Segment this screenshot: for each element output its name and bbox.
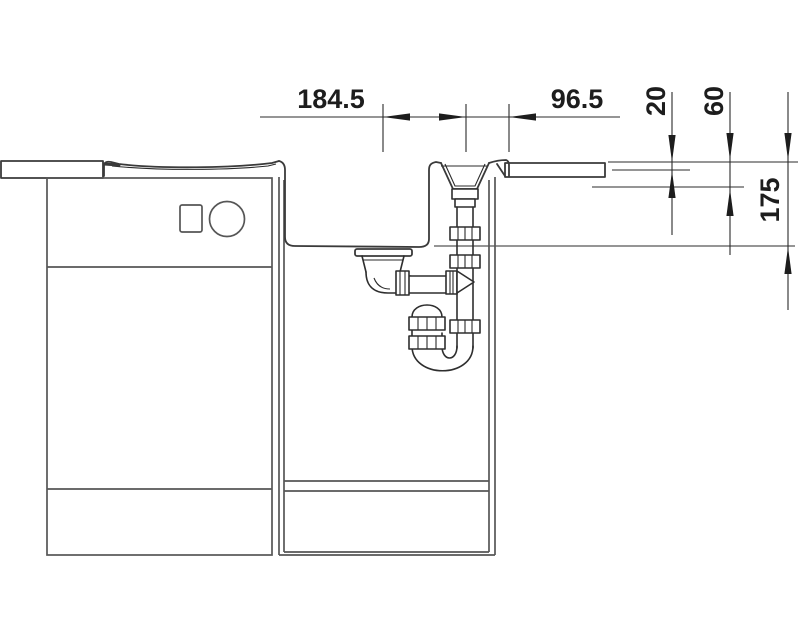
strainer-flange [355,249,412,256]
dim-arrow [383,113,410,120]
control-knob [210,202,245,237]
ribbed-ring [409,317,445,330]
cone-valve [446,271,474,294]
drain-nut [452,189,478,199]
dim-arrow [439,113,466,120]
sink-profile [104,160,509,247]
ribbed-ring [409,336,445,349]
dim-label-60: 60 [699,86,729,116]
dim-arrow [726,133,733,160]
small-drain-bowl [441,163,489,189]
main-drain-assembly [355,249,450,295]
dim-label-96-5: 96.5 [551,84,604,114]
worktop-right [497,163,605,177]
ribbed-coupling [450,320,480,333]
dim-arrow [668,135,675,162]
control-button [180,205,202,232]
outlet-dome [412,305,442,317]
worktop-left [1,161,103,178]
dim-arrow [509,113,536,120]
ribbed-coupling [450,227,480,240]
dim-label-184-5: 184.5 [297,84,365,114]
technical-drawing-canvas: 184.5 96.5 20 60 175 [0,0,800,640]
second-drain-pipe [446,189,480,348]
dim-label-20: 20 [641,86,671,116]
sink-bowl [279,161,441,247]
cabinet-left [47,178,272,555]
dim-arrow [668,171,675,198]
dim-arrow [784,133,791,160]
pipe-coupling [396,271,409,295]
ribbed-coupling [450,255,480,268]
u-trap [409,305,473,371]
dimension-vertical-group: 20 60 175 [641,86,792,310]
dim-arrow [726,189,733,216]
dim-arrow [784,247,791,274]
appliance-controls [180,202,245,237]
sink-section-drawing: 184.5 96.5 20 60 175 [0,0,800,640]
dim-label-175: 175 [755,177,785,222]
dimension-horizontal-group: 184.5 96.5 [260,84,620,152]
